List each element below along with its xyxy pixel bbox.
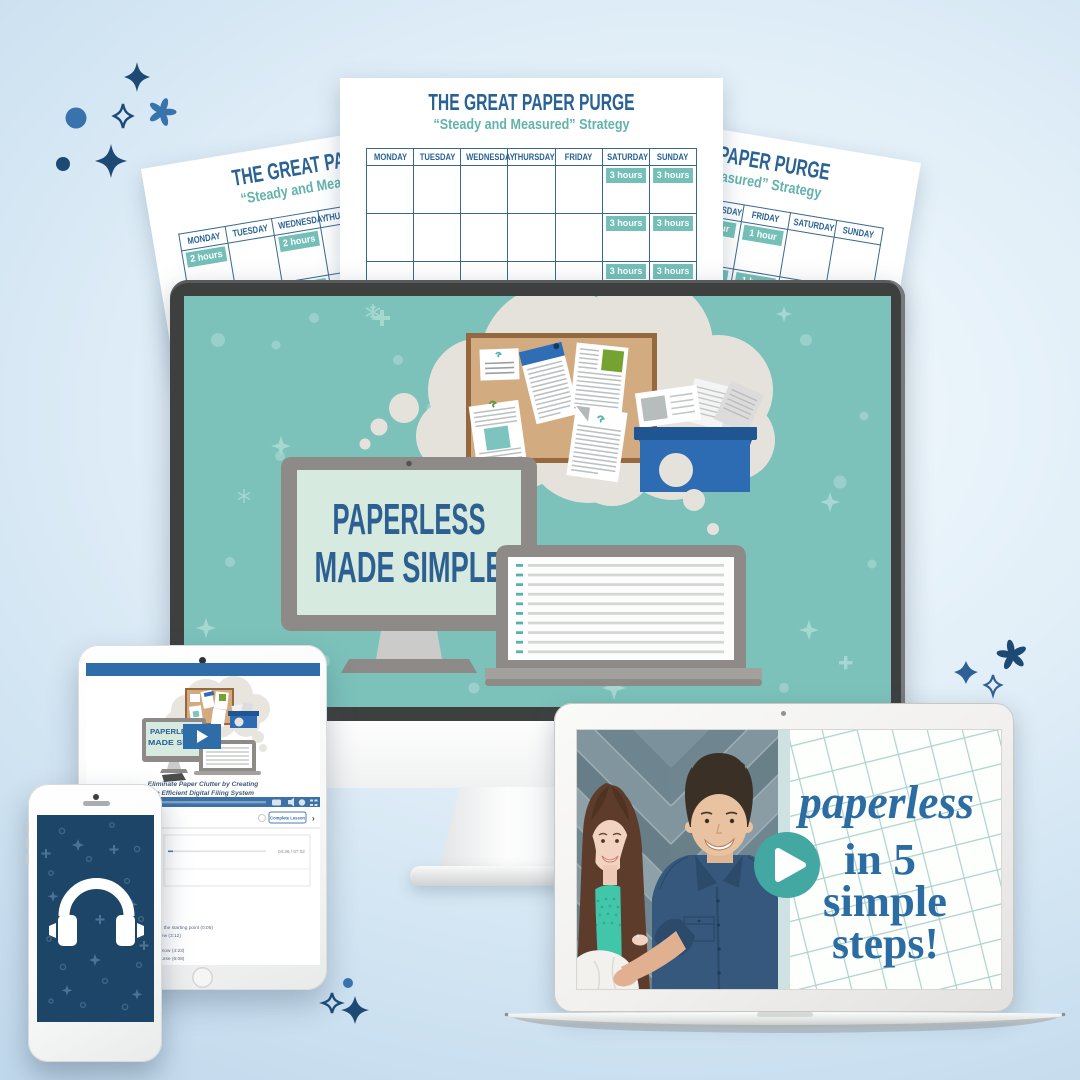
svg-text:Eliminate Paper Clutter by Cre: Eliminate Paper Clutter by Creating xyxy=(148,781,259,788)
svg-text:steps!: steps! xyxy=(832,919,939,968)
svg-text:PAPERLE: PAPERLE xyxy=(150,727,186,736)
svg-text:MADE SIMPLE: MADE SIMPLE xyxy=(315,542,504,591)
svg-text:an Efficient Digital Filing Sy: an Efficient Digital Filing System xyxy=(152,790,254,797)
svg-text:PAPERLESS: PAPERLESS xyxy=(333,494,486,543)
svg-text:paperless: paperless xyxy=(795,776,974,829)
svg-text:Complete Lesson: Complete Lesson xyxy=(270,816,305,821)
svg-text:›: › xyxy=(312,814,315,823)
svg-text:04:36 / 07:02: 04:36 / 07:02 xyxy=(278,849,305,854)
